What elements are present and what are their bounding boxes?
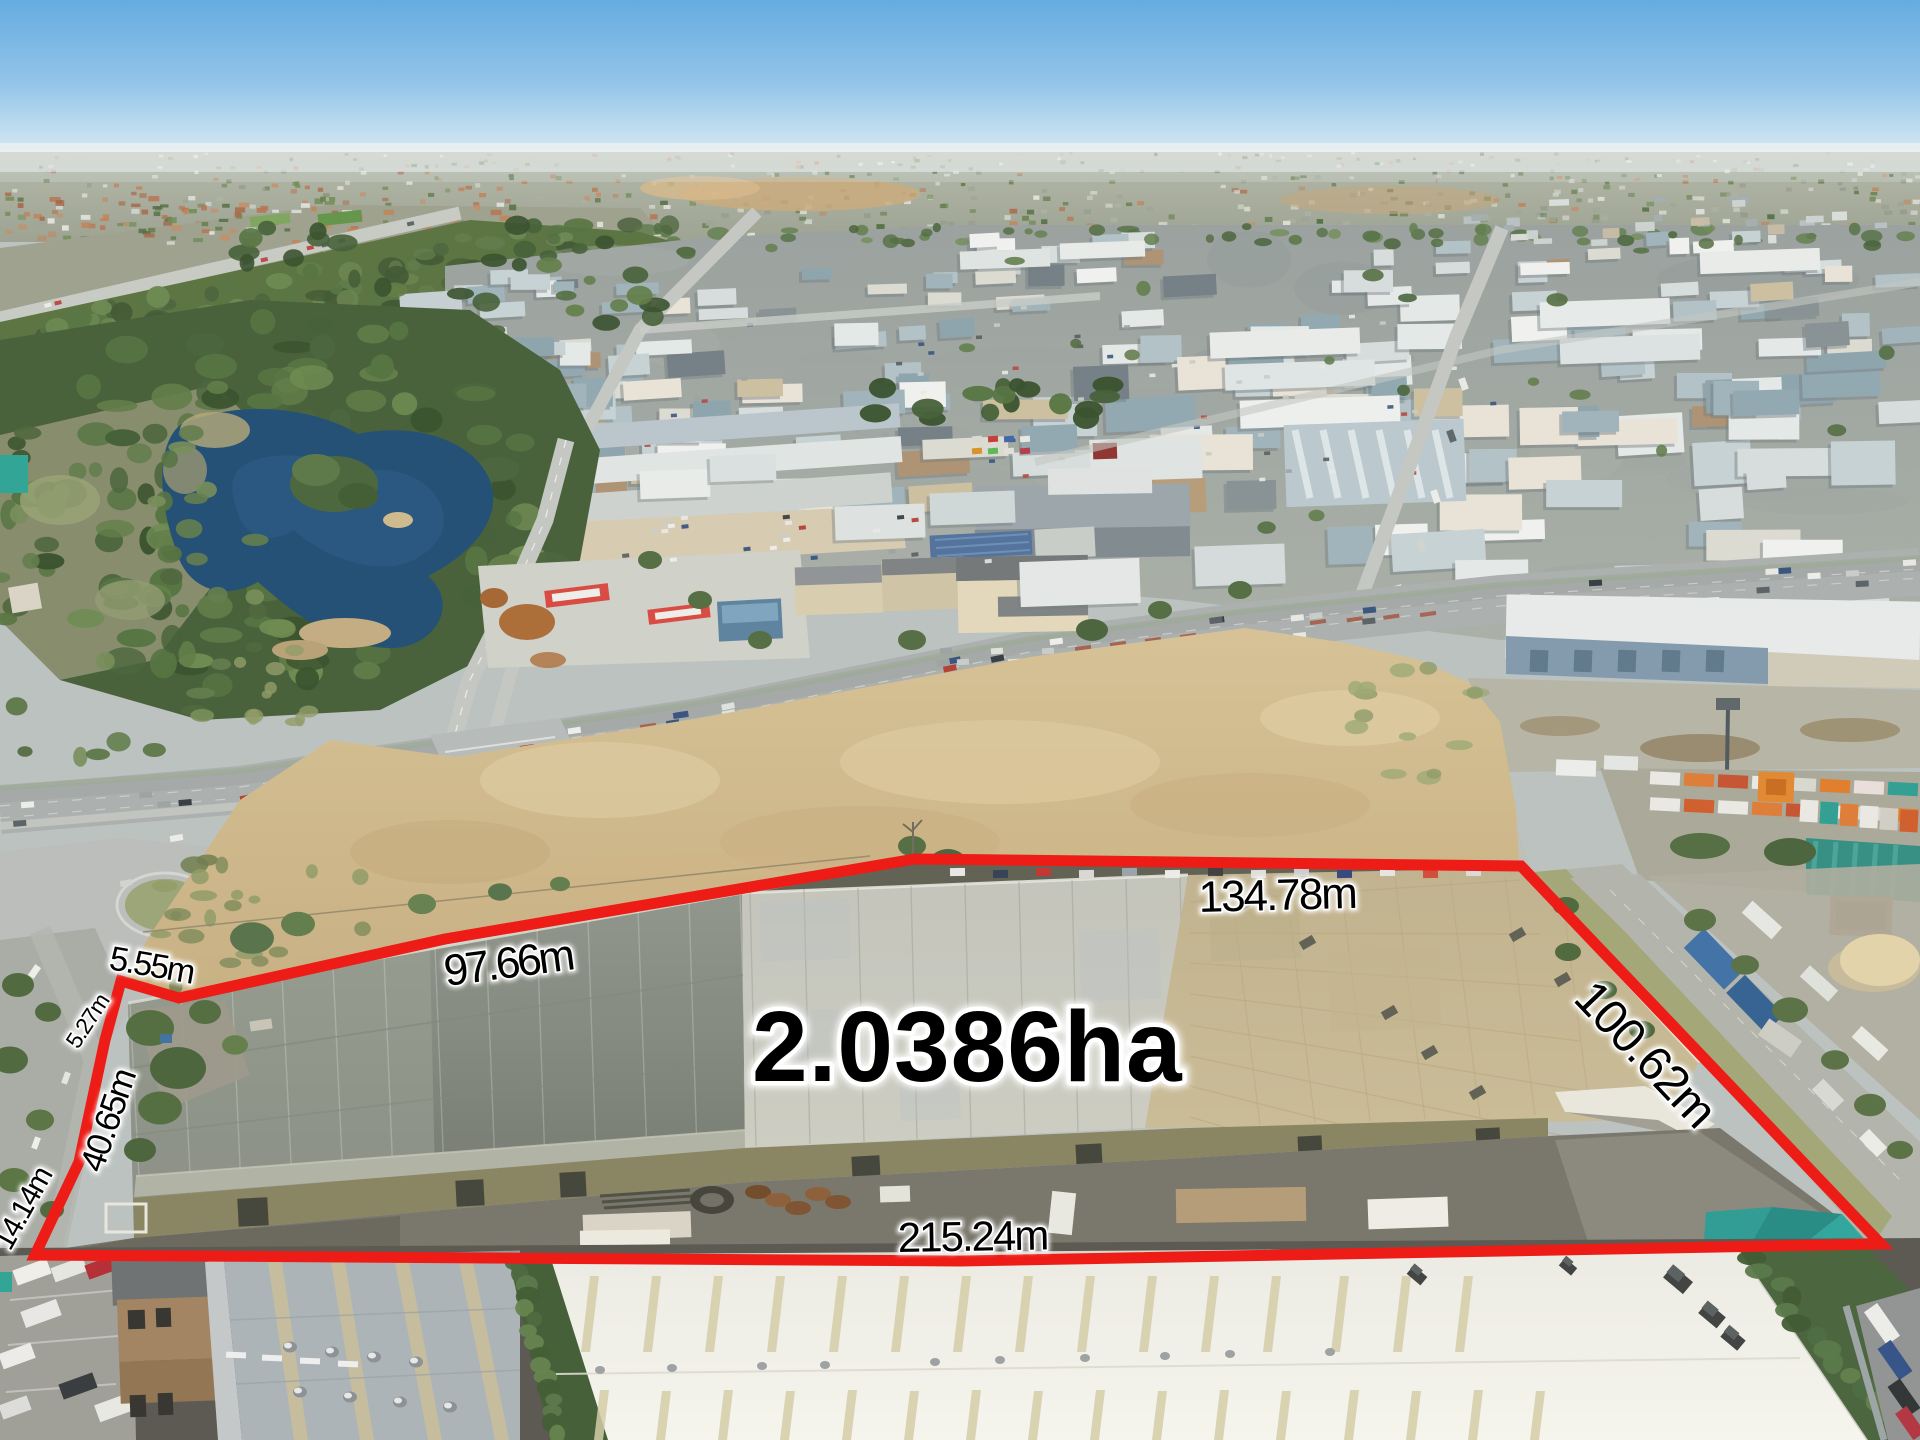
- svg-text:134.78m: 134.78m: [1198, 869, 1356, 922]
- svg-text:215.24m: 215.24m: [897, 1211, 1047, 1261]
- svg-text:2.0386ha: 2.0386ha: [752, 991, 1183, 1103]
